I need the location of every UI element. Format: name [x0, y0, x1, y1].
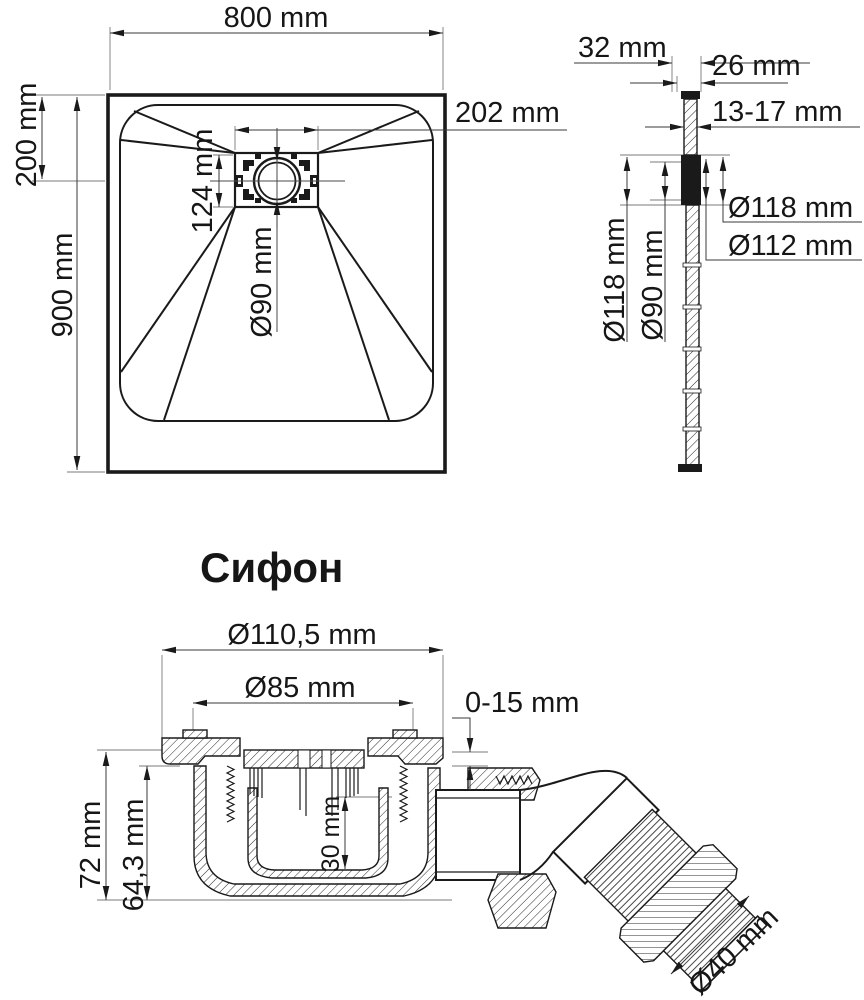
right-thread	[400, 766, 407, 822]
tray-side-view: 32 mm 26 mm 13-17 mm Ø118 mm Ø112 mm Ø11…	[574, 32, 862, 472]
left-thread	[227, 766, 234, 822]
dim-label-tray-length: 900 mm	[47, 233, 79, 338]
dim-label-flange-recess: Ø112 mm	[728, 230, 853, 262]
dim-label-min-height: 26 mm	[712, 50, 801, 82]
drain-flange-section	[681, 155, 701, 205]
dim-label-body-height: 64,3 mm	[118, 799, 150, 912]
flange-left-bolt	[183, 730, 207, 738]
flange-right-wing	[368, 738, 443, 764]
lower-union-nut	[488, 874, 556, 928]
shower-tray-technical-drawing: 800 mm 200 mm 900 mm 202 mm 124 mm Ø90 m…	[0, 0, 864, 1000]
dim-label-bottom-thickness: 13-17 mm	[712, 96, 843, 128]
dim-label-siphon-outer: Ø110,5 mm	[227, 619, 376, 651]
dim-label-siphon-inner: Ø85 mm	[244, 672, 355, 704]
dim-label-tray-width: 800 mm	[224, 2, 329, 34]
elbow-45-assembly	[543, 768, 780, 1000]
dim-label-flange-outer: Ø118 mm	[728, 192, 853, 224]
outlet-pipe	[436, 790, 520, 880]
dim-label-drain-offset: 200 mm	[11, 83, 43, 188]
flange-left-wing	[162, 738, 240, 764]
dim-label-plate-width: 202 mm	[455, 97, 560, 129]
siphon-body	[162, 730, 443, 896]
dim-label-side-drain-diameter: Ø90 mm	[637, 229, 669, 340]
siphon-section: Сифон	[75, 544, 785, 1000]
dim-label-drain-diameter: Ø90 mm	[246, 226, 278, 337]
flange-right-bolt	[393, 730, 417, 738]
dim-label-plate-depth: 124 mm	[187, 129, 219, 234]
tray-top-view: 800 mm 200 mm 900 mm 202 mm 124 mm Ø90 m…	[11, 2, 567, 472]
dim-label-total-height: 72 mm	[75, 801, 107, 890]
dim-label-edge-height: 32 mm	[578, 32, 667, 64]
tray-profile	[678, 91, 702, 472]
technical-drawing-page: 800 mm 200 mm 900 mm 202 mm 124 mm Ø90 m…	[0, 0, 864, 1000]
dim-label-adjustment: 0-15 mm	[465, 687, 579, 719]
dim-label-flange-outer-left: Ø118 mm	[599, 217, 631, 342]
siphon-title: Сифон	[200, 544, 343, 591]
dim-label-water-seal: 30 mm	[317, 796, 345, 872]
